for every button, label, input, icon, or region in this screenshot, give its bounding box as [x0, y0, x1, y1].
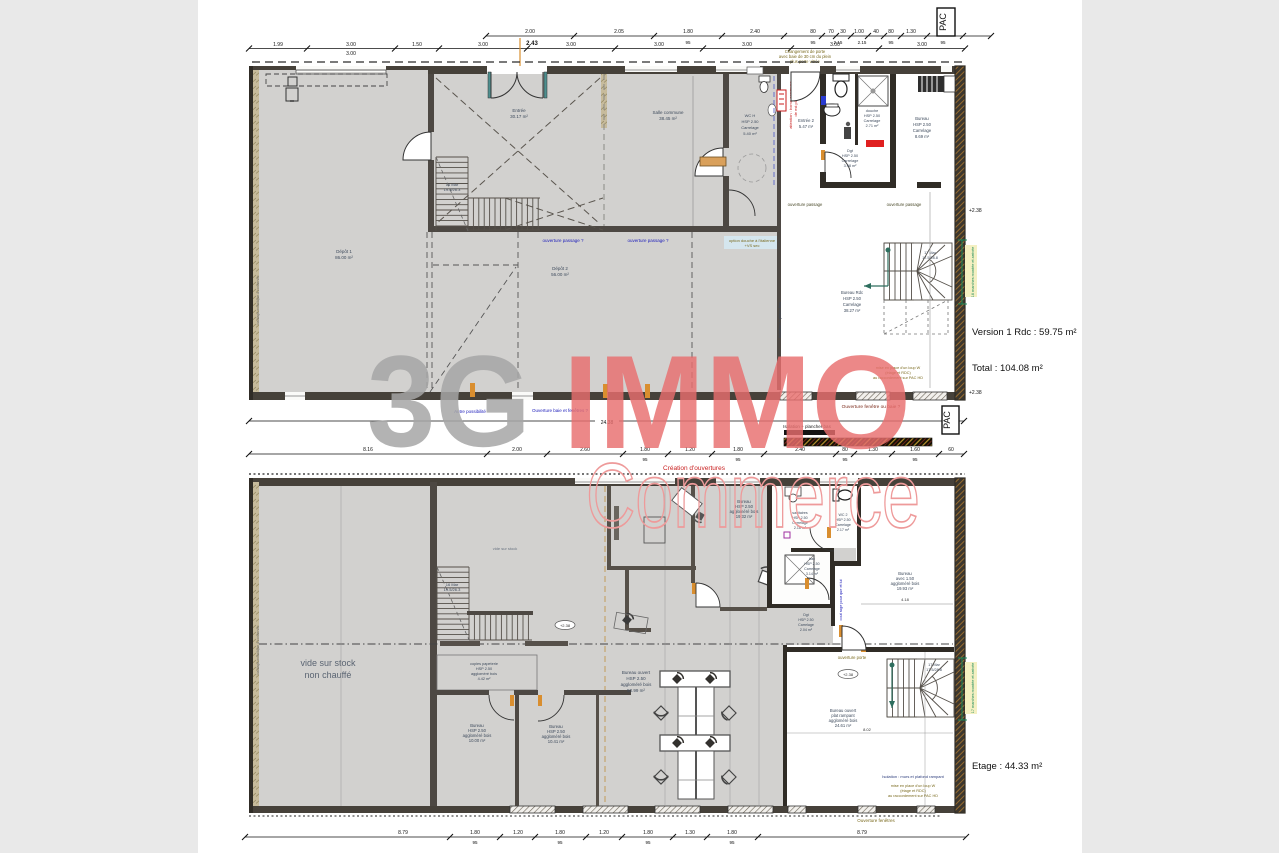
- svg-text:1.80: 1.80: [683, 29, 693, 35]
- svg-text:cout rage pour que et lui: cout rage pour que et lui: [839, 579, 843, 620]
- svg-text:86.00 m²: 86.00 m²: [335, 255, 353, 260]
- svg-text:17 marches montée et arrivée: 17 marches montée et arrivée: [971, 663, 975, 713]
- svg-text:Bureau Rdc: Bureau Rdc: [841, 290, 863, 295]
- svg-text:Dépôt 2: Dépôt 2: [552, 266, 568, 271]
- svg-text:95: 95: [685, 40, 691, 45]
- svg-text:3.00: 3.00: [346, 51, 356, 57]
- svg-text:1.30: 1.30: [685, 830, 695, 836]
- svg-text:95: 95: [888, 40, 894, 45]
- svg-text:bardage métallique à conserver: bardage métallique à conserver: [256, 625, 260, 675]
- svg-text:95: 95: [810, 40, 816, 45]
- svg-text:HSP 2.50: HSP 2.50: [804, 562, 819, 566]
- svg-text:8.79: 8.79: [398, 830, 408, 836]
- svg-text:Bureau ouvert: Bureau ouvert: [622, 670, 651, 675]
- svg-text:8.02: 8.02: [863, 727, 872, 732]
- svg-text:bardage métallique à conserver: bardage métallique à conserver: [256, 275, 260, 325]
- svg-text:+2.38: +2.38: [969, 208, 982, 214]
- svg-text:ouverture passage ?: ouverture passage ?: [627, 238, 669, 243]
- svg-text:3.00: 3.00: [830, 42, 840, 48]
- svg-text:HSP 2.50: HSP 2.50: [913, 122, 932, 127]
- svg-text:1.99: 1.99: [273, 42, 283, 48]
- svg-text:aggloméré bois: aggloméré bois: [471, 672, 497, 676]
- svg-text:1.80: 1.80: [555, 830, 565, 836]
- svg-text:3.00: 3.00: [346, 42, 356, 48]
- svg-text:HSP 2.50: HSP 2.50: [842, 154, 858, 158]
- svg-text:Entrée: Entrée: [512, 108, 526, 113]
- svg-text:PAC: PAC: [942, 411, 952, 429]
- svg-text:+2.38: +2.38: [969, 390, 982, 396]
- svg-text:30: 30: [840, 29, 846, 35]
- svg-text:HSP 2.50: HSP 2.50: [476, 667, 492, 671]
- svg-text:3.14 m²: 3.14 m²: [806, 572, 819, 576]
- svg-text:17.5/28.8: 17.5/28.8: [926, 668, 942, 672]
- svg-text:Carrelage: Carrelage: [913, 128, 932, 133]
- svg-text:au raccordement sur PAC HD: au raccordement sur PAC HD: [888, 794, 938, 798]
- svg-text:vide sur stock: vide sur stock: [493, 546, 517, 551]
- svg-text:Etage : 44.33 m²: Etage : 44.33 m²: [972, 761, 1042, 772]
- svg-text:aggloméré bois: aggloméré bois: [621, 682, 653, 687]
- svg-text:1.80: 1.80: [727, 830, 737, 836]
- svg-text:ouverture passage: ouverture passage: [788, 202, 823, 207]
- svg-text:30.17 m²: 30.17 m²: [510, 114, 528, 119]
- svg-text:Carrelage: Carrelage: [843, 302, 862, 307]
- svg-text:ouverture porte: ouverture porte: [838, 655, 867, 660]
- svg-text:2.71 m²: 2.71 m²: [866, 124, 880, 128]
- svg-text:Carrelage: Carrelage: [842, 159, 859, 163]
- svg-text:2.15: 2.15: [858, 40, 867, 45]
- svg-text:1.00: 1.00: [854, 29, 864, 35]
- svg-text:mise en place d'un loup W: mise en place d'un loup W: [891, 784, 936, 788]
- svg-text:56.00 m²: 56.00 m²: [551, 272, 569, 277]
- svg-text:95: 95: [645, 840, 651, 845]
- svg-text:19.5/26.3: 19.5/26.3: [444, 587, 461, 592]
- svg-text:4.42 m²: 4.42 m²: [478, 677, 492, 681]
- svg-text:HSP 2.50: HSP 2.50: [843, 296, 862, 301]
- svg-text:10.00 m²: 10.00 m²: [469, 738, 486, 743]
- svg-text:2.40: 2.40: [750, 29, 760, 35]
- svg-text:Commerce: Commerce: [586, 445, 920, 547]
- svg-text:95: 95: [940, 40, 946, 45]
- svg-text:80: 80: [810, 29, 816, 35]
- svg-text:1.80: 1.80: [643, 830, 653, 836]
- svg-text:3.00: 3.00: [654, 42, 664, 48]
- svg-text:vide sur stock: vide sur stock: [300, 658, 356, 668]
- svg-text:8.79: 8.79: [857, 830, 867, 836]
- svg-text:3.00: 3.00: [478, 42, 488, 48]
- svg-text:bac: bac: [809, 557, 815, 561]
- svg-text:38.45 m²: 38.45 m²: [659, 116, 677, 121]
- svg-text:Dgt: Dgt: [803, 613, 809, 617]
- svg-text:2.04 m²: 2.04 m²: [800, 628, 813, 632]
- svg-text:17 Mar: 17 Mar: [928, 663, 941, 667]
- svg-text:HSP 2.50: HSP 2.50: [798, 618, 813, 622]
- svg-text:2.05: 2.05: [614, 29, 624, 35]
- svg-text:1.80: 1.80: [470, 830, 480, 836]
- svg-text:95: 95: [557, 840, 563, 845]
- svg-text:50.99 m²: 50.99 m²: [627, 688, 645, 693]
- svg-text:ouverture passage ?: ouverture passage ?: [542, 238, 584, 243]
- svg-text:19.93 m²: 19.93 m²: [897, 586, 914, 591]
- svg-text:95: 95: [472, 840, 478, 845]
- svg-text:3G: 3G: [367, 328, 531, 474]
- svg-text:Ouverture fenêtres: Ouverture fenêtres: [857, 818, 895, 823]
- svg-text:HSP 2.50: HSP 2.50: [864, 114, 880, 118]
- svg-text:HSP 2.50: HSP 2.50: [741, 119, 759, 124]
- svg-text:Dépôt 1: Dépôt 1: [336, 249, 352, 254]
- svg-text:non chauffé: non chauffé: [305, 670, 352, 680]
- svg-text:copies papeterie: copies papeterie: [470, 662, 498, 666]
- svg-text:8.69 m²: 8.69 m²: [915, 134, 930, 139]
- svg-text:16 marches montée et arrivée: 16 marches montée et arrivée: [971, 247, 975, 297]
- svg-text:3.00: 3.00: [742, 42, 752, 48]
- svg-text:19.5/26.3: 19.5/26.3: [444, 187, 461, 192]
- svg-text:+2.38: +2.38: [843, 672, 854, 677]
- svg-text:3.98 m²: 3.98 m²: [844, 164, 858, 168]
- svg-text:24.61 m²: 24.61 m²: [835, 723, 852, 728]
- svg-text:Carrelage: Carrelage: [741, 125, 759, 130]
- svg-text:1.50: 1.50: [412, 42, 422, 48]
- svg-text:+2.38: +2.38: [560, 623, 571, 628]
- svg-text:95: 95: [729, 840, 735, 845]
- svg-text:5.40 m²: 5.40 m²: [743, 131, 757, 136]
- svg-text:60: 60: [948, 447, 954, 453]
- svg-text:10.41 m²: 10.41 m²: [548, 739, 565, 744]
- svg-text:2.43: 2.43: [526, 41, 538, 47]
- svg-text:HSP 2.50: HSP 2.50: [626, 676, 646, 681]
- svg-text:(étage et RDC): (étage et RDC): [900, 789, 926, 793]
- svg-text:PAC: PAC: [938, 13, 948, 31]
- svg-text:1.30: 1.30: [906, 29, 916, 35]
- svg-text:3.00: 3.00: [566, 42, 576, 48]
- svg-text:Entrée 2: Entrée 2: [798, 118, 815, 123]
- svg-text:Bureau: Bureau: [915, 116, 929, 121]
- svg-text:Carrelage: Carrelage: [804, 567, 820, 571]
- svg-text:douche: douche: [866, 109, 878, 113]
- svg-text:70: 70: [828, 29, 834, 35]
- svg-text:WC H: WC H: [745, 113, 756, 118]
- svg-text:40: 40: [873, 29, 879, 35]
- svg-text:80: 80: [888, 29, 894, 35]
- svg-text:17 Mar: 17 Mar: [924, 251, 937, 255]
- svg-text:Isolation : murs et plafond ra: Isolation : murs et plafond rampant: [882, 774, 944, 779]
- svg-text:+VS sec: +VS sec: [744, 243, 759, 248]
- svg-text:4.18: 4.18: [901, 597, 910, 602]
- svg-text:Carrelage: Carrelage: [864, 119, 881, 123]
- svg-text:Salle commune: Salle commune: [652, 110, 684, 115]
- svg-text:1.20: 1.20: [513, 830, 523, 836]
- svg-text:5.47 m²: 5.47 m²: [799, 124, 814, 129]
- svg-text:38.27 m²: 38.27 m²: [844, 308, 861, 313]
- svg-text:Carrelage: Carrelage: [798, 623, 814, 627]
- svg-text:ouverture passage: ouverture passage: [887, 202, 922, 207]
- svg-text:Dgt: Dgt: [847, 149, 854, 153]
- svg-text:2.00: 2.00: [525, 29, 535, 35]
- svg-text:3.00: 3.00: [917, 42, 927, 48]
- svg-text:Version 1 Rdc : 59.75 m²: Version 1 Rdc : 59.75 m²: [972, 327, 1077, 338]
- svg-text:Total : 104.08 m²: Total : 104.08 m²: [972, 363, 1043, 374]
- svg-text:1.20: 1.20: [599, 830, 609, 836]
